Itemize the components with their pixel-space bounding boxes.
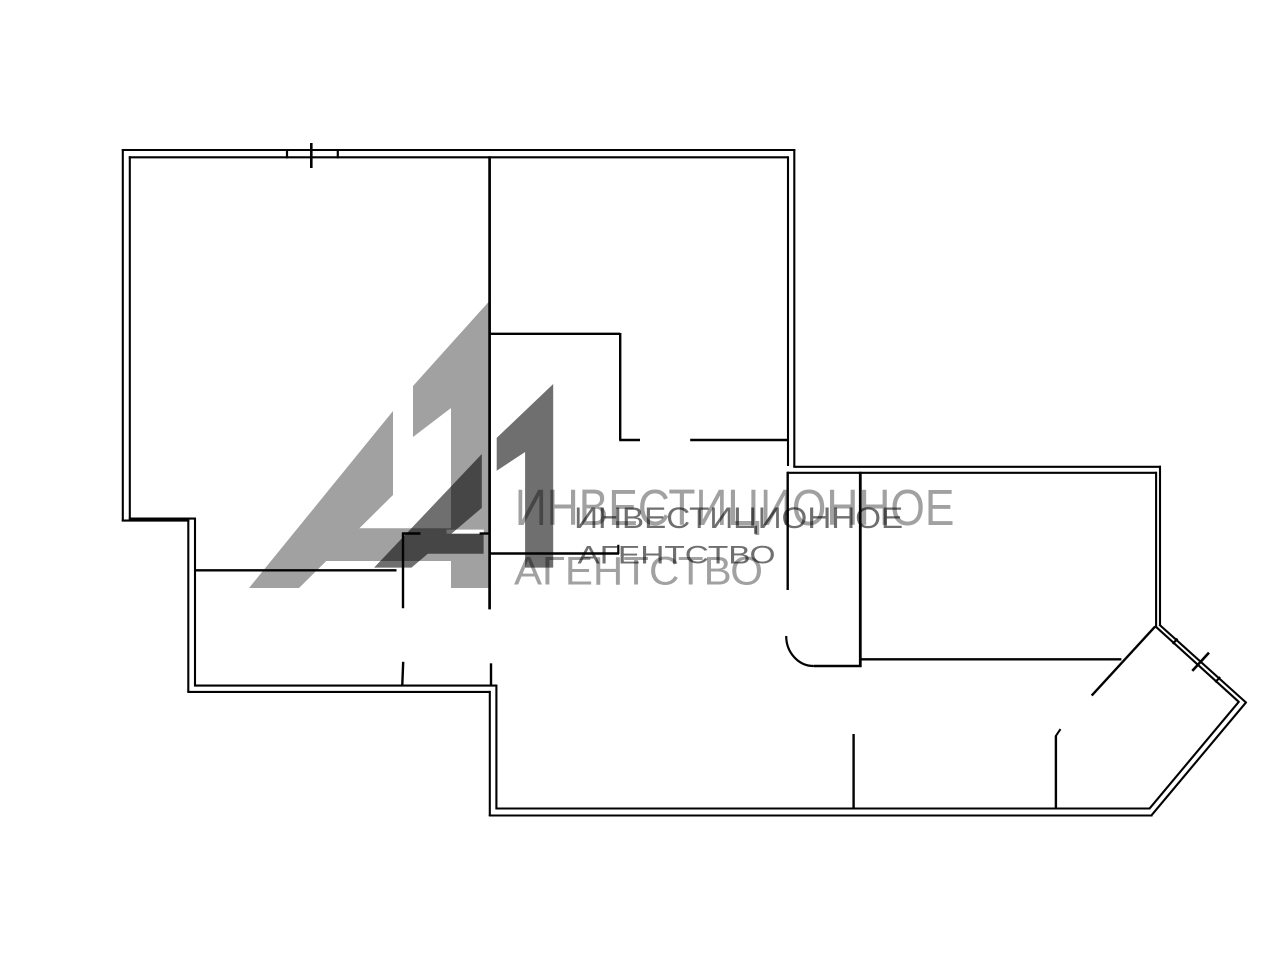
svg-text:АГЕНТСТВО: АГЕНТСТВО: [578, 541, 776, 569]
svg-text:ИНВЕСТИЦИОННОЕ: ИНВЕСТИЦИОННОЕ: [574, 502, 903, 535]
